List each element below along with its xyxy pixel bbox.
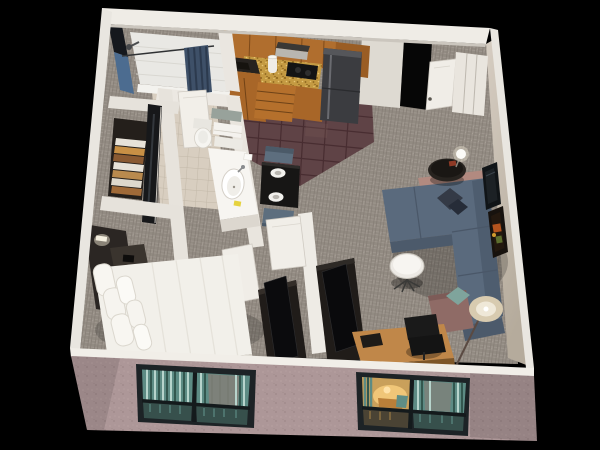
amenities [244, 154, 253, 161]
linen-shelves [108, 118, 148, 200]
refrigerator [320, 48, 362, 124]
paper-towel-roll [268, 55, 277, 73]
towel-shelf [211, 108, 243, 150]
red-decor [449, 160, 457, 166]
floorplan-screenshot [0, 0, 600, 450]
entry-door [426, 59, 456, 110]
right-window [356, 372, 470, 436]
door-handle [428, 97, 432, 101]
room-kitchen [222, 30, 370, 124]
phone [123, 255, 135, 263]
shower-tub [130, 32, 230, 92]
drawer-stack [254, 82, 296, 122]
toilet [193, 118, 212, 148]
dining-table [260, 162, 300, 208]
left-window [136, 364, 256, 428]
coffee-table [390, 254, 424, 293]
shower-curtain [184, 45, 212, 95]
divider-door [266, 216, 306, 270]
wall-sconce [94, 234, 110, 246]
teal-chair-through-window [396, 395, 408, 408]
scene-svg [0, 0, 600, 450]
entry-closet [452, 52, 488, 116]
